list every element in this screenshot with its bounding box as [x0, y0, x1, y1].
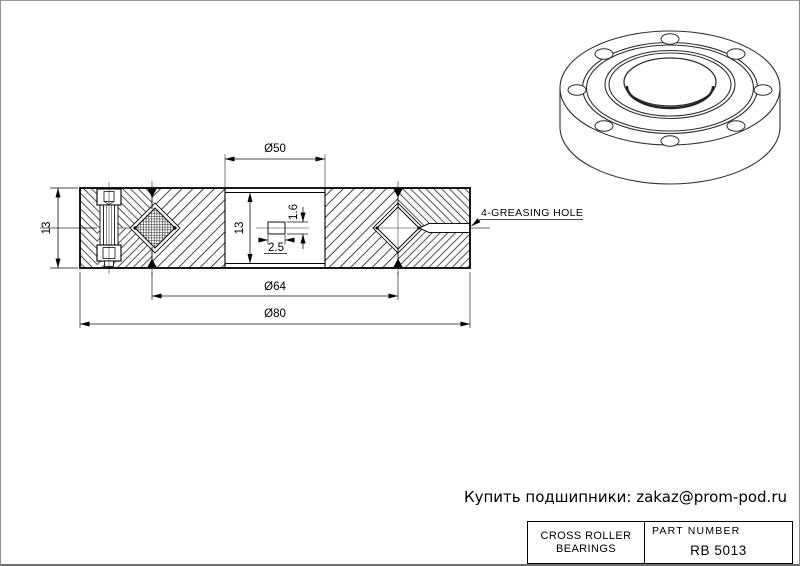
- greasing-leader-line: [472, 220, 584, 227]
- product-name-line2: BEARINGS: [556, 543, 616, 556]
- dim-inner-width-label: 13: [234, 222, 246, 235]
- title-block: CROSS ROLLER BEARINGS PART NUMBER RB 501…: [527, 521, 793, 564]
- greasing-callout: 4-GREASING HOLE: [472, 207, 584, 226]
- promo-text: Купить подшипники: zakaz@prom-pod.ru: [464, 488, 787, 506]
- dim-pitch-label: Ø64: [264, 281, 286, 293]
- title-block-part-cell: PART NUMBER RB 5013: [645, 522, 792, 563]
- part-number-label: PART NUMBER: [652, 525, 740, 537]
- technical-drawing: Ø50 13 13 2.5 1.6: [0, 0, 800, 566]
- isometric-view: [560, 31, 780, 184]
- cross-section-view: Ø50 13 13 2.5 1.6: [40, 143, 583, 328]
- greasing-hole-channel: [419, 224, 470, 233]
- part-number-value: RB 5013: [645, 543, 792, 558]
- title-block-product-cell: CROSS ROLLER BEARINGS: [528, 522, 645, 563]
- dim-width-label: 13: [41, 222, 53, 235]
- product-name-line1: CROSS ROLLER: [541, 530, 632, 543]
- dim-outer-label: Ø80: [264, 308, 286, 320]
- mounting-bolt: [97, 182, 121, 274]
- dim-key-width-label: 2.5: [268, 242, 284, 254]
- bearing-outer-face: [560, 31, 780, 145]
- dim-key-height-label: 1.6: [288, 204, 300, 220]
- greasing-label: 4-GREASING HOLE: [481, 207, 583, 219]
- dim-bore-label: Ø50: [264, 143, 286, 155]
